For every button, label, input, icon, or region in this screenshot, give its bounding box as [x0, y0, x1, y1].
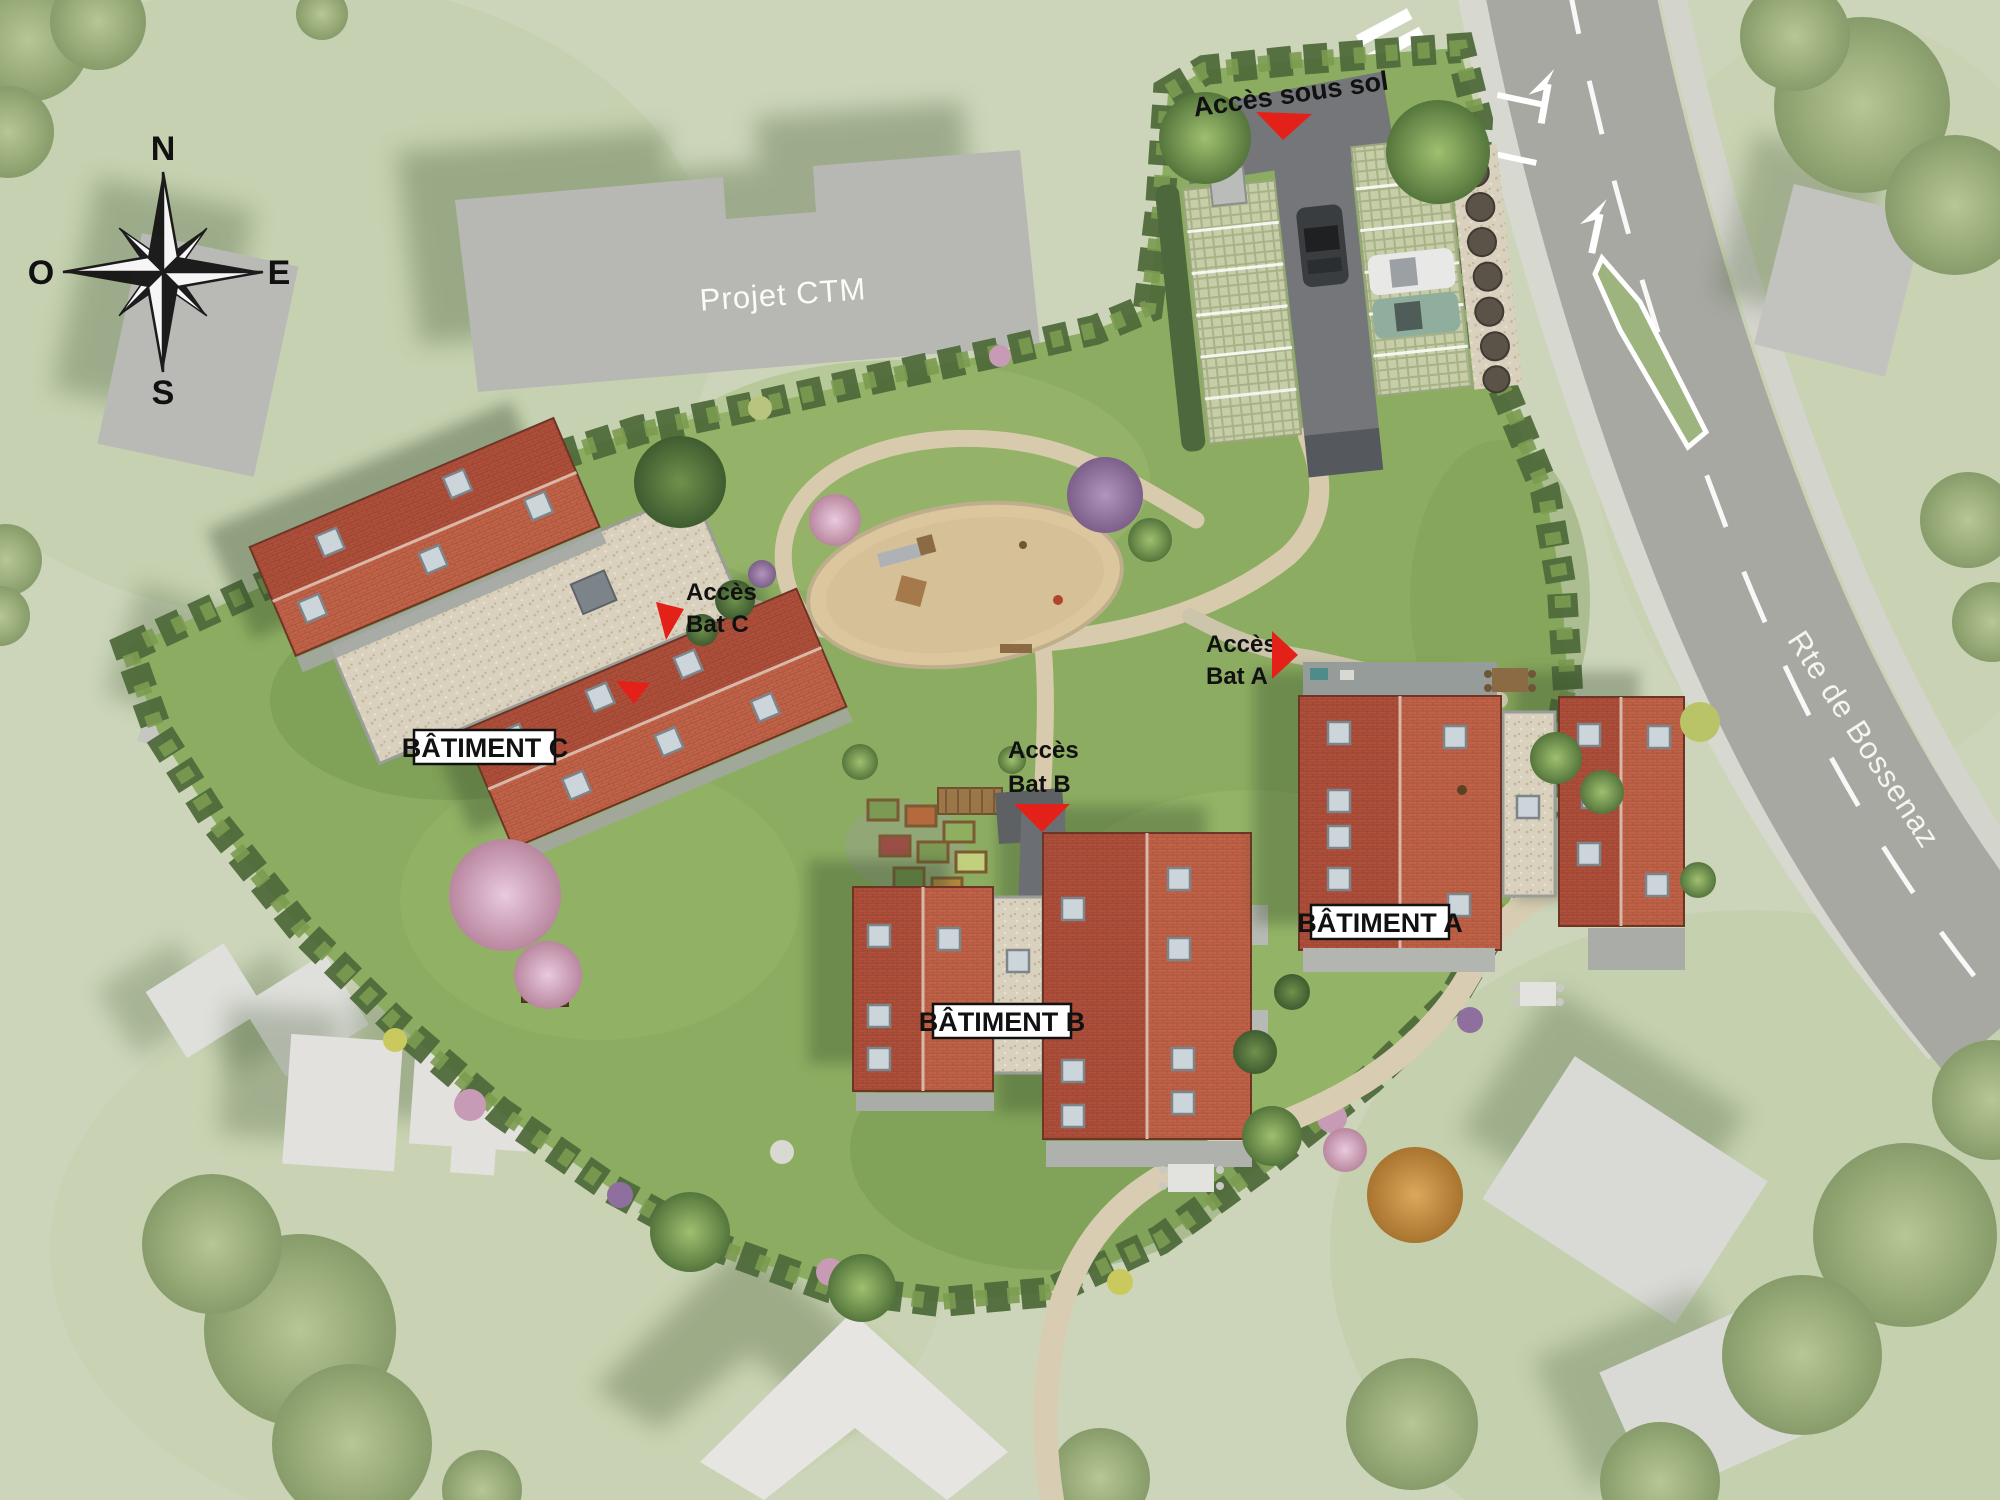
access-bat-a-line1: Accès: [1206, 631, 1277, 658]
compass-west-label: O: [28, 254, 54, 292]
building-b-roof-west: [853, 887, 994, 1111]
site-plan-svg: Rte de Bossenaz Projet CTM: [0, 0, 2000, 1500]
building-c-label: BÂTIMENT C: [402, 730, 568, 764]
access-bat-b-line2: Bat B: [1008, 771, 1071, 798]
bench: [1000, 644, 1032, 653]
compass-east-label: E: [268, 254, 291, 292]
building-a-label-text: BÂTIMENT A: [1297, 907, 1462, 938]
building-a-label: BÂTIMENT A: [1297, 905, 1462, 939]
access-bat-a-line2: Bat A: [1206, 663, 1268, 690]
neighbor-building: [282, 1034, 403, 1171]
access-bat-c-line1: Accès: [686, 579, 757, 606]
garden-round-table: [770, 1140, 794, 1164]
building-b-label-text: BÂTIMENT B: [919, 1006, 1085, 1037]
roof-finial: [1457, 785, 1467, 795]
compass-north-label: N: [151, 130, 176, 168]
spring-toy: [1053, 595, 1063, 605]
neighbor-building: [450, 1126, 497, 1175]
building-c-label-text: BÂTIMENT C: [402, 732, 568, 763]
building-b-roof-east: [1043, 833, 1268, 1167]
compass-south-label: S: [152, 374, 175, 412]
building-a: [1254, 662, 1685, 1006]
building-b-label: BÂTIMENT B: [919, 1004, 1085, 1038]
site-plan-canvas: Rte de Bossenaz Projet CTM: [0, 0, 2000, 1500]
garage-ramp: [1304, 428, 1383, 478]
building-a-terrace-north: [1303, 662, 1497, 696]
access-bat-c-line2: Bat C: [686, 611, 749, 638]
car-dark: [1295, 204, 1349, 288]
access-bat-b-line1: Accès: [1008, 737, 1079, 764]
building-b-courtyard: [993, 897, 1043, 1073]
